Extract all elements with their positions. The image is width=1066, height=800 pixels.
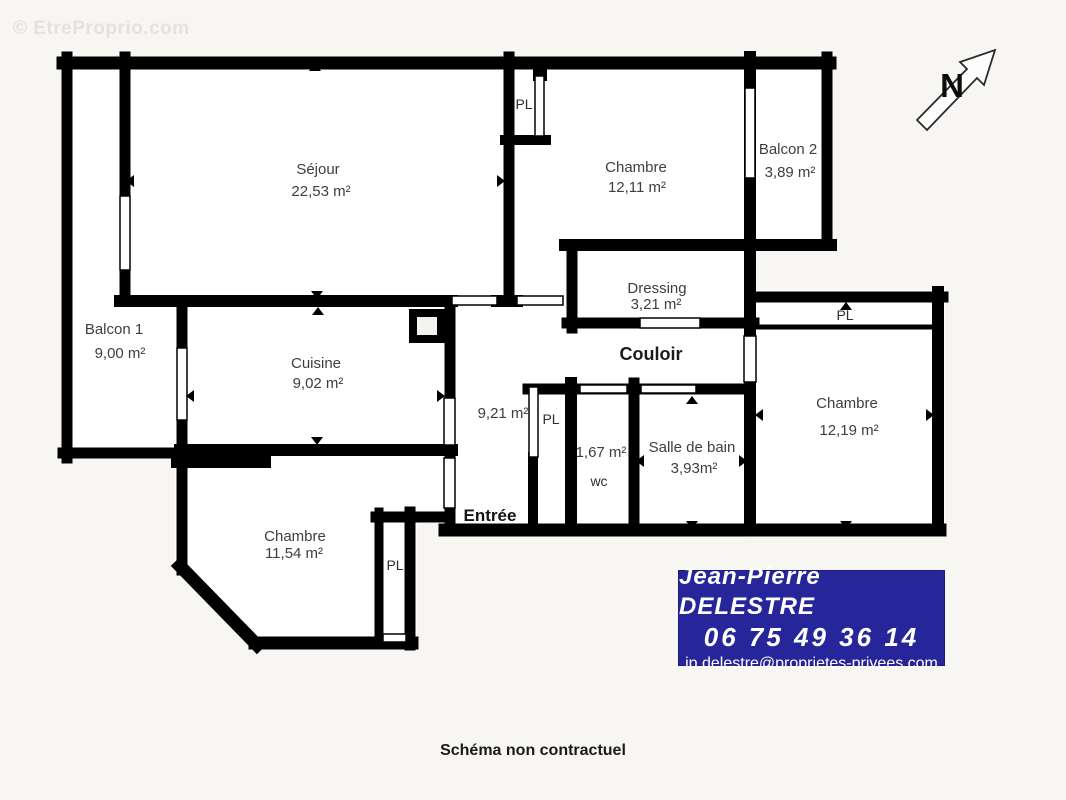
room-area-sejour: 22,53 m² (291, 183, 350, 200)
room-label-wc: wc (589, 473, 607, 489)
closet-label-pl-top: PL (515, 96, 532, 112)
compass-label: N (940, 67, 964, 104)
door-opening (383, 634, 406, 642)
room-label-chambre1: Chambre (605, 159, 667, 176)
door-opening (580, 385, 627, 393)
room-area-wc: 1,67 m² (576, 444, 627, 461)
door-opening (452, 296, 497, 305)
room-area-couloir: 9,21 m² (478, 405, 529, 422)
room-label-sejour: Séjour (296, 161, 339, 178)
room-area-chambre2: 12,19 m² (819, 422, 878, 439)
room-area-salle-de-bain: 3,93m² (671, 460, 718, 477)
agent-name: Jean-Pierre DELESTRE (679, 562, 944, 622)
door-opening (641, 385, 696, 393)
room-area-chambre3: 11,54 m² (265, 545, 323, 562)
room-label-salle-de-bain: Salle de bain (649, 439, 736, 456)
floor-plan-svg: Séjour 22,53 m² Chambre 12,11 m² Balcon … (0, 0, 1066, 800)
room-area-balcon2: 3,89 m² (765, 164, 816, 181)
room-label-couloir: Couloir (620, 344, 683, 364)
floor-plan-page: { "watermark": "© EtreProprio.com", "com… (0, 0, 1066, 800)
closet-label-pl-chambre2: PL (836, 307, 853, 323)
closet-label-pl-chambre3: PL (386, 557, 403, 573)
room-label-balcon2: Balcon 2 (759, 141, 817, 158)
disclaimer-text: Schéma non contractuel (0, 742, 1066, 760)
room-label-chambre2: Chambre (816, 395, 878, 412)
window (745, 88, 755, 178)
window (177, 348, 187, 420)
door-opening (444, 398, 455, 445)
room-label-balcon1: Balcon 1 (85, 321, 143, 338)
door-opening (640, 318, 700, 328)
duct-box (409, 309, 445, 343)
room-area-balcon1: 9,00 m² (95, 345, 146, 362)
room-area-dressing: 3,21 m² (631, 296, 682, 313)
room-label-cuisine: Cuisine (291, 355, 341, 372)
door-opening (744, 336, 756, 382)
agent-phone: 06 75 49 36 14 (704, 622, 920, 653)
room-area-cuisine: 9,02 m² (293, 375, 344, 392)
door-opening (529, 387, 538, 457)
room-label-dressing: Dressing (627, 280, 686, 297)
room-area-chambre1: 12,11 m² (608, 179, 666, 196)
door-opening (517, 296, 563, 305)
compass: N (917, 50, 995, 130)
agent-email: jp.delestre@proprietes-privees.com (685, 653, 938, 675)
closet-label-pl-couloir: PL (542, 411, 559, 427)
window (120, 196, 130, 270)
agent-banner: Jean-Pierre DELESTRE 06 75 49 36 14 jp.d… (678, 570, 945, 666)
entrance-door (444, 458, 455, 508)
door-opening (535, 76, 544, 136)
room-label-entree: Entrée (464, 506, 517, 525)
room-label-chambre3: Chambre (264, 528, 326, 545)
